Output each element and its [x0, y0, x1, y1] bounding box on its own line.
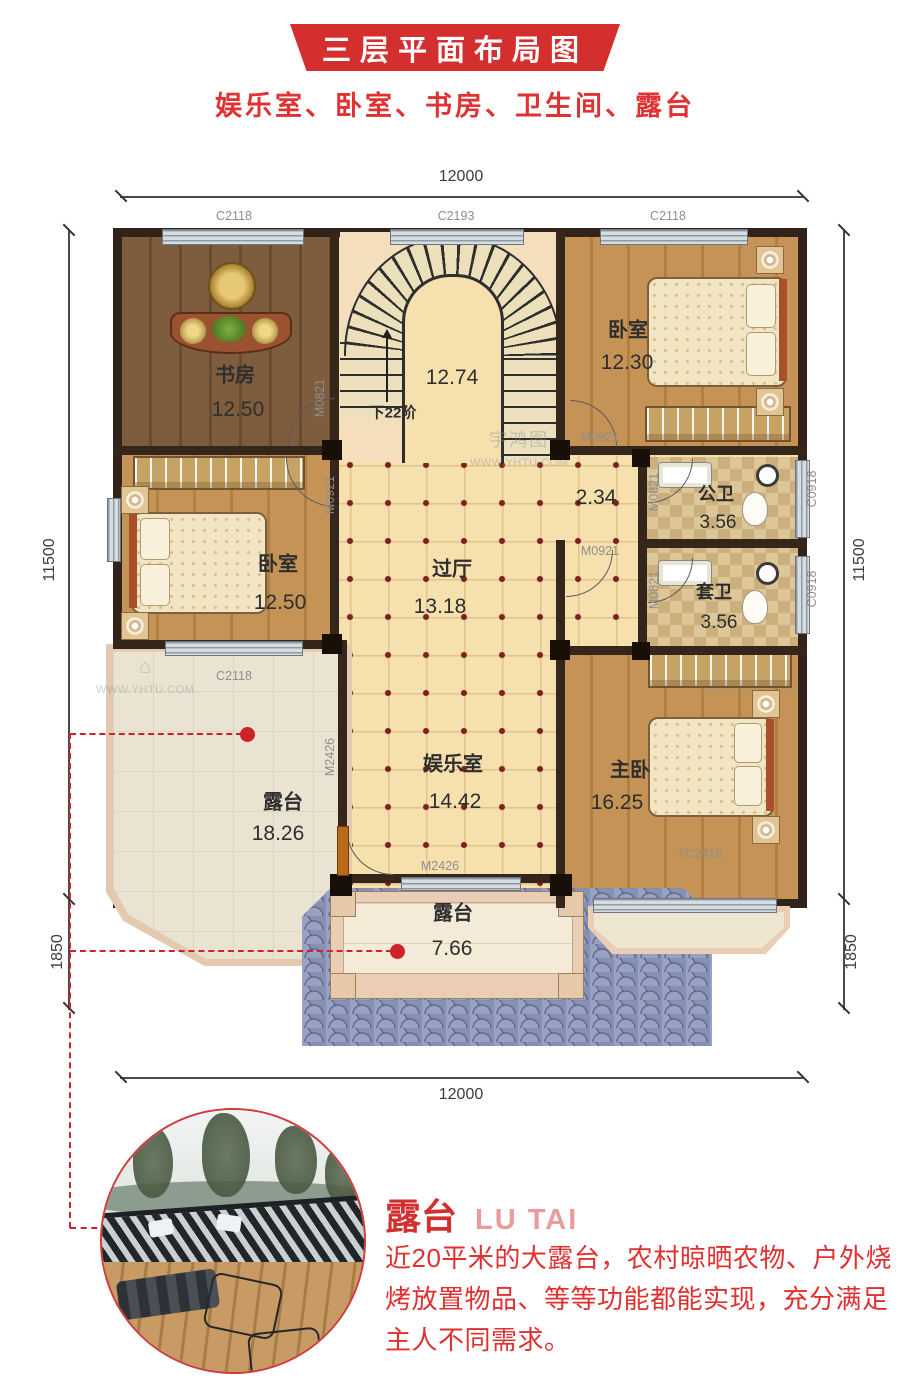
label-m0921: M0921 [323, 476, 337, 514]
nightstand [752, 690, 780, 718]
label-tc2418: TC2418 [678, 847, 722, 861]
bed-headboard [779, 279, 787, 381]
callout-description: 近20平米的大露台，农村晾晒农物、户外烧烤放置物品、等等功能都能实现，充分满足主… [385, 1238, 901, 1361]
photo-tree [325, 1147, 359, 1203]
wall [638, 455, 647, 655]
callout-dash-line [70, 950, 392, 952]
desk-lamp [252, 318, 278, 344]
master-bay-window [588, 906, 790, 954]
callout-title: 露台 [385, 1188, 457, 1240]
wall [646, 539, 807, 548]
column-block [550, 640, 570, 660]
pillow [734, 766, 762, 806]
label-c0918: C0918 [805, 571, 819, 608]
pillow [734, 723, 762, 763]
room-area-master: 16.25 [591, 791, 644, 815]
room-area-corridor: 2.34 [576, 486, 617, 510]
stairs-note: 下22阶 [370, 402, 417, 423]
nightstand [752, 816, 780, 844]
terrace-column [330, 973, 356, 999]
room-label-study: 书房 [215, 359, 255, 388]
room-area-entertainment: 14.42 [429, 790, 482, 814]
room-label-bath-ensuite: 套卫 [696, 578, 732, 604]
label-m0921: M0921 [581, 430, 619, 444]
photo-cushion [216, 1213, 242, 1232]
nightstand [756, 246, 784, 274]
room-area-terrace-small: 7.66 [432, 937, 473, 961]
page-title: 三层平面布局图 [322, 27, 588, 69]
room-label-bath-public: 公卫 [698, 480, 734, 506]
column-block [632, 642, 650, 660]
floor-drain [756, 562, 779, 585]
room-label-terrace-large: 露台 [263, 786, 303, 815]
window-c2193-top-center [390, 229, 524, 245]
room-area-stairs: 12.74 [426, 366, 479, 390]
nightstand [121, 612, 149, 640]
watermark: ⌂ WWW.YHTU.COM [96, 655, 194, 698]
label-m2426: M2426 [421, 859, 459, 873]
room-area-study: 12.50 [212, 398, 265, 422]
yhtu-logo-icon: ⌂ [96, 655, 194, 679]
label-c2118: C2118 [650, 209, 686, 223]
window-c2118-top-right [600, 229, 748, 245]
label-c0918: C0918 [805, 471, 819, 508]
terrace-door-leaf [337, 826, 349, 876]
dim-width-bottom: 12000 [439, 1086, 484, 1104]
floor-plan-page: 三层平面布局图 娱乐室、卧室、书房、卫生间、露台 12000 12000 115… [0, 0, 910, 1394]
room-label-bedroom-left: 卧室 [258, 548, 298, 577]
pillow [140, 518, 170, 560]
terrace-photo [100, 1108, 366, 1374]
staircase [340, 232, 562, 462]
callout-dot-terrace-large [240, 727, 255, 742]
label-m0821: M0821 [647, 571, 661, 609]
dim-height-left: 11500 [41, 538, 59, 581]
callout-dot-terrace-small [390, 944, 405, 959]
wardrobe [133, 456, 305, 490]
wall [556, 446, 807, 455]
column-block [330, 874, 352, 896]
pillow [746, 284, 776, 328]
door-m2426-entertainment [401, 877, 521, 891]
room-area-hall: 13.18 [414, 595, 467, 619]
desk-plant [212, 316, 246, 342]
room-area-terrace-large: 18.26 [252, 822, 305, 846]
pillow [746, 332, 776, 376]
room-area-bath-ensuite: 3.56 [701, 612, 738, 634]
column-block [322, 634, 342, 654]
page-subtitle: 娱乐室、卧室、书房、卫生间、露台 [215, 84, 695, 123]
wall [113, 446, 339, 455]
room-area-bedroom-left: 12.50 [254, 591, 307, 615]
wall [556, 540, 565, 908]
column-block [632, 449, 650, 467]
photo-tree [202, 1113, 250, 1197]
toilet [742, 492, 768, 526]
desk-lamp [180, 318, 206, 344]
toilet [742, 590, 768, 624]
dim-line-right [843, 230, 845, 1010]
wall [556, 646, 807, 655]
dim-width-top: 12000 [439, 168, 484, 186]
dim-ext-left: 1850 [49, 934, 67, 970]
photo-tree [275, 1126, 317, 1194]
room-area-bedroom-top-right: 12.30 [601, 351, 654, 375]
label-m0821: M0821 [313, 379, 327, 417]
stairs-direction-arrow [386, 332, 388, 402]
label-m2426: M2426 [323, 738, 337, 776]
window-c2118-terrace [165, 641, 303, 656]
nightstand [121, 486, 149, 514]
nightstand [756, 388, 784, 416]
label-m0921: M0921 [581, 544, 619, 558]
column-block [550, 874, 572, 896]
label-m0821: M0821 [647, 473, 661, 511]
callout-title-en: LU TAI [475, 1204, 578, 1237]
room-label-hall: 过厅 [432, 553, 472, 582]
wall [556, 228, 565, 455]
callout-dash-line [70, 733, 242, 735]
floor-drain [756, 464, 779, 487]
dim-height-right: 11500 [851, 538, 869, 581]
bed-headboard [129, 514, 137, 608]
title-banner: 三层平面布局图 [290, 24, 620, 71]
window-c2118-top-left [162, 229, 304, 245]
watermark-url: WWW.YHTU.COM [96, 684, 194, 696]
column-block [322, 440, 342, 460]
study-chair [208, 262, 256, 310]
photo-wire-chair [247, 1326, 324, 1374]
dim-line-bottom [120, 1077, 803, 1079]
pillow [140, 564, 170, 606]
label-c2118: C2118 [216, 209, 252, 223]
room-label-entertainment: 娱乐室 [423, 748, 483, 777]
window-bedroom-left [107, 498, 121, 562]
bed-headboard [766, 719, 774, 811]
label-c2193: C2193 [438, 209, 475, 223]
wardrobe [648, 652, 792, 688]
label-c2118: C2118 [216, 669, 252, 683]
dim-ext-right: 1850 [843, 934, 861, 970]
window-tc2418-master [593, 898, 777, 913]
column-block [550, 440, 570, 460]
room-label-master: 主卧 [610, 754, 650, 783]
dim-line-top [120, 196, 803, 198]
callout-title-row: 露台 LU TAI [385, 1188, 578, 1240]
callout-dash-line [69, 733, 71, 1228]
terrace-column [558, 973, 584, 999]
master-bay-floor [594, 912, 784, 948]
room-area-bath-public: 3.56 [700, 512, 737, 534]
room-label-terrace-small: 露台 [433, 897, 473, 926]
room-label-bedroom-top-right: 卧室 [608, 314, 648, 343]
